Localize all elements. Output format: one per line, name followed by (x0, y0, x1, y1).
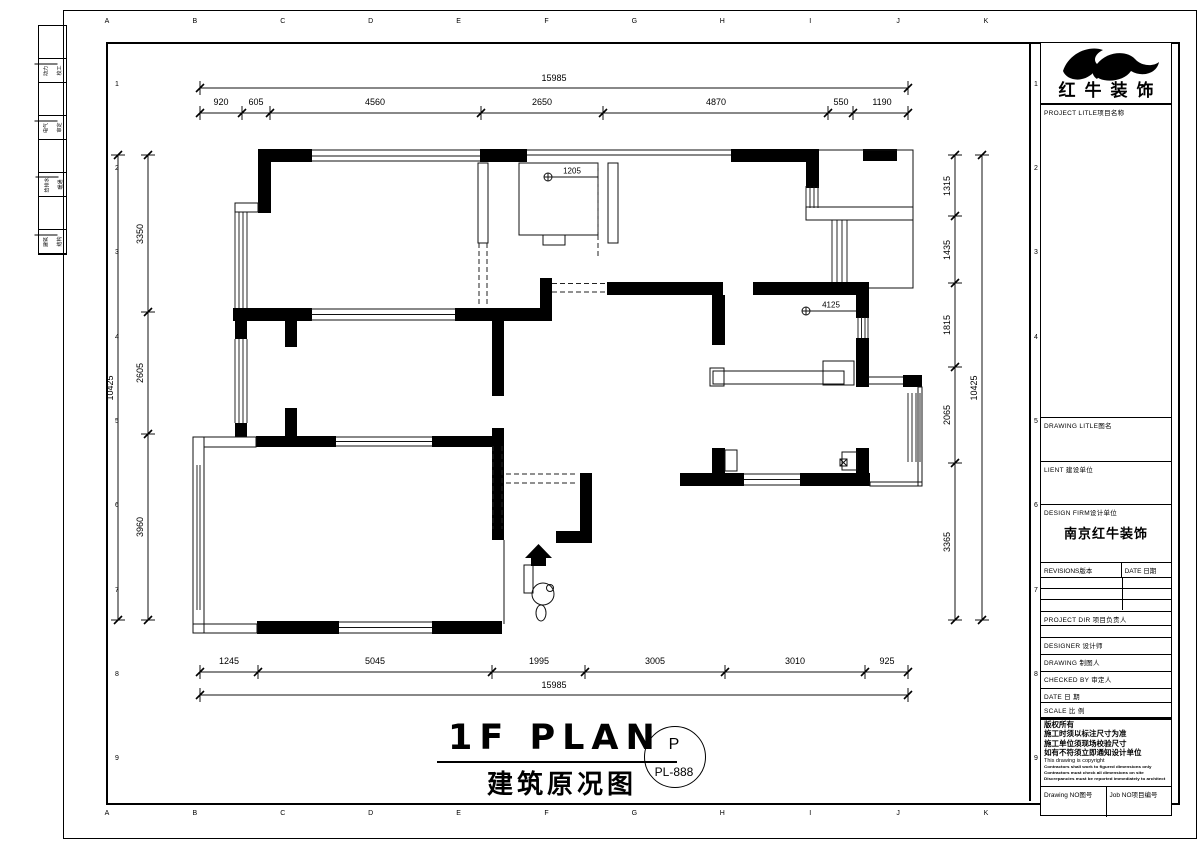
job-no-label: Job NO项目编号 (1107, 787, 1172, 817)
logo-text: 红牛装饰 (1041, 76, 1171, 101)
closet-dim-label: 1205 (563, 167, 581, 176)
dim-left-seg-3: 3960 (135, 517, 145, 537)
dim-top-seg-6: 550 (833, 97, 848, 107)
title-block: 红牛装饰 PROJECT LITLE项目名称 DRAWING LITLE图名 L… (1040, 42, 1172, 816)
revisions-date-label: DATE 日期 (1122, 563, 1157, 577)
dim-right-seg-4: 2065 (942, 405, 952, 425)
dim-bot-seg-6: 925 (879, 656, 894, 666)
copyright-line: Discrepancies must be reported immediate… (1041, 776, 1171, 781)
copyright-line: 施工时须以标注尺寸为准 (1041, 729, 1171, 738)
date-label: DATE 日 期 (1041, 689, 1171, 701)
dim-top-seg-3: 4560 (365, 97, 385, 107)
dim-right-seg-2: 1435 (942, 240, 952, 260)
window-lines (311, 150, 903, 633)
dim-top-seg-5: 4870 (706, 97, 726, 107)
dim-bot-seg-1: 1245 (219, 656, 239, 666)
thin-walls (193, 150, 922, 633)
checked-by-label: CHECKED BY 审定人 (1041, 672, 1171, 684)
revision-row (1041, 589, 1171, 600)
dim-bot-seg-2: 5045 (365, 656, 385, 666)
project-title-cell: PROJECT LITLE项目名称 (1041, 105, 1171, 418)
revisions-cell: REVISIONS版本 DATE 日期 (1041, 563, 1171, 612)
drawing-title-label: DRAWING LITLE图名 (1041, 418, 1171, 430)
dim-bot-overall: 15985 (541, 680, 566, 690)
date-cell: DATE 日 期 (1041, 689, 1171, 703)
design-firm-label: DESIGN FIRM设计单位 (1041, 505, 1171, 517)
scale-label: SCALE 比 例 (1041, 703, 1171, 715)
revision-row (1041, 600, 1171, 610)
dim-bot-seg-5: 3010 (785, 656, 805, 666)
drawing-sheet: ABCDEFGHIJK ABCDEFGHIJK 123456789 123456… (0, 0, 1200, 844)
dim-left-seg-2: 2605 (135, 363, 145, 383)
wall-dim-label: 4125 (822, 301, 840, 310)
drawing-no-label: Drawing NO图号 (1041, 787, 1107, 817)
dim-top-overall: 15985 (541, 73, 566, 83)
copyright-line: Contractors must check all dimensions on… (1041, 770, 1171, 775)
dim-right-seg-3: 1815 (942, 315, 952, 335)
copyright-line: 版权所有 (1041, 720, 1171, 729)
walls (233, 149, 922, 634)
designer-cell: DESIGNER 设计师 (1041, 638, 1171, 655)
dim-bot-seg-4: 3005 (645, 656, 665, 666)
dim-left-overall: 10425 (105, 375, 115, 400)
drawing-number: PL-888 (655, 765, 694, 779)
client-cell: LIENT 建设单位 (1041, 462, 1171, 505)
dim-right-overall: 10425 (969, 375, 979, 400)
revision-row (1041, 578, 1171, 589)
stamp-letter: P (669, 736, 680, 754)
copyright-line: 施工单位须现场校验尺寸 (1041, 739, 1171, 748)
copyright-line: 如有不符须立即通知设计单位 (1041, 748, 1171, 757)
drawing-title-cell: DRAWING LITLE图名 (1041, 418, 1171, 462)
dim-right-seg-5: 3365 (942, 532, 952, 552)
dim-right-seg-1: 1315 (942, 176, 952, 196)
dim-top-seg-7: 1190 (872, 97, 891, 107)
dim-top-seg-2: 605 (248, 97, 263, 107)
design-firm-cell: DESIGN FIRM设计单位 南京红牛装饰 (1041, 505, 1171, 563)
design-firm-value: 南京红牛装饰 (1041, 523, 1171, 542)
title-underline (437, 761, 677, 763)
dimension-slashes (114, 84, 986, 699)
project-director-cell: PROJECT DIR 项目负责人 (1041, 612, 1171, 638)
checked-by-cell: CHECKED BY 审定人 (1041, 672, 1171, 689)
draftsman-cell: DRAWING 制图人 (1041, 655, 1171, 672)
designer-label: DESIGNER 设计师 (1041, 638, 1171, 650)
dimension-lines (118, 88, 982, 695)
client-label: LIENT 建设单位 (1041, 462, 1171, 474)
plan-title: 1F PLAN (448, 718, 662, 758)
logo-cell: 红牛装饰 (1041, 43, 1171, 105)
dim-left-seg-1: 3350 (135, 224, 145, 244)
revisions-label: REVISIONS版本 (1041, 563, 1122, 577)
dim-bot-seg-3: 1995 (529, 656, 549, 666)
window-hatches (193, 186, 920, 610)
scale-cell: SCALE 比 例 (1041, 703, 1171, 719)
project-title-label: PROJECT LITLE项目名称 (1041, 105, 1171, 117)
project-director-label: PROJECT DIR 项目负责人 (1041, 612, 1171, 624)
copyright-cell: 版权所有施工时须以标注尺寸为准施工单位须现场校验尺寸如有不符须立即通知设计单位T… (1041, 719, 1171, 787)
entry-arrow (525, 544, 552, 566)
numbers-cell: Drawing NO图号 Job NO项目编号 (1041, 787, 1171, 817)
dim-top-seg-1: 920 (213, 97, 228, 107)
copyright-line: Contractors shall work to figured dimens… (1041, 765, 1171, 770)
draftsman-label: DRAWING 制图人 (1041, 655, 1171, 667)
dim-top-seg-4: 2650 (532, 97, 552, 107)
plan-subtitle: 建筑原况图 (487, 764, 637, 801)
